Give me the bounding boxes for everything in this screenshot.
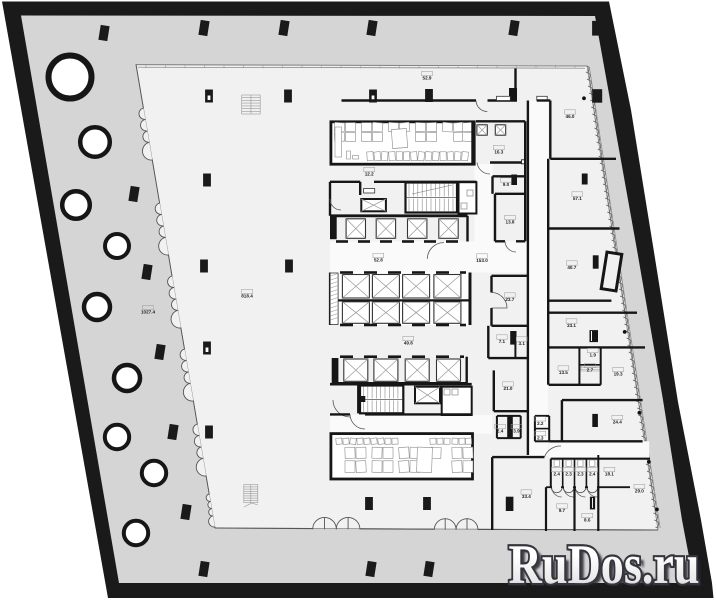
svg-text:16.3: 16.3 [494, 150, 503, 155]
svg-text:7.1: 7.1 [499, 339, 506, 344]
svg-text:52.8: 52.8 [374, 258, 383, 263]
svg-text:33.1: 33.1 [567, 323, 576, 328]
svg-text:2.4: 2.4 [554, 472, 561, 477]
svg-text:24.4: 24.4 [613, 420, 622, 425]
svg-text:33.4: 33.4 [522, 494, 531, 499]
svg-text:21.0: 21.0 [504, 386, 513, 391]
svg-text:1.9: 1.9 [590, 353, 597, 358]
svg-text:18.1: 18.1 [605, 472, 614, 477]
svg-text:23.7: 23.7 [505, 297, 514, 302]
svg-text:3.1: 3.1 [519, 341, 526, 346]
svg-text:2.4: 2.4 [497, 429, 504, 434]
svg-text:57.1: 57.1 [573, 196, 582, 201]
svg-text:19.3: 19.3 [614, 372, 623, 377]
svg-text:2.3: 2.3 [565, 472, 572, 477]
svg-text:RuDos.ru: RuDos.ru [509, 534, 700, 596]
svg-text:818.4: 818.4 [241, 294, 253, 299]
svg-text:153.0: 153.0 [476, 258, 488, 263]
svg-text:9.0: 9.0 [503, 182, 510, 187]
svg-text:29.0: 29.0 [635, 489, 644, 494]
svg-text:2.3: 2.3 [537, 436, 544, 441]
svg-text:13.5: 13.5 [559, 370, 568, 375]
svg-text:46.0: 46.0 [566, 114, 575, 119]
svg-text:8.6: 8.6 [584, 518, 591, 523]
svg-text:2.3: 2.3 [577, 472, 584, 477]
svg-text:1027.4: 1027.4 [141, 310, 155, 315]
svg-text:49.8: 49.8 [404, 341, 413, 346]
svg-text:9.7: 9.7 [559, 508, 566, 513]
svg-text:3.9: 3.9 [513, 429, 520, 434]
svg-text:2.4: 2.4 [589, 472, 596, 477]
svg-text:12.2: 12.2 [365, 172, 374, 177]
svg-text:2.7: 2.7 [587, 368, 594, 373]
svg-text:40.7: 40.7 [567, 265, 576, 270]
svg-text:52.9: 52.9 [423, 76, 432, 81]
svg-text:13.8: 13.8 [506, 220, 515, 225]
svg-text:2.2: 2.2 [537, 421, 544, 426]
